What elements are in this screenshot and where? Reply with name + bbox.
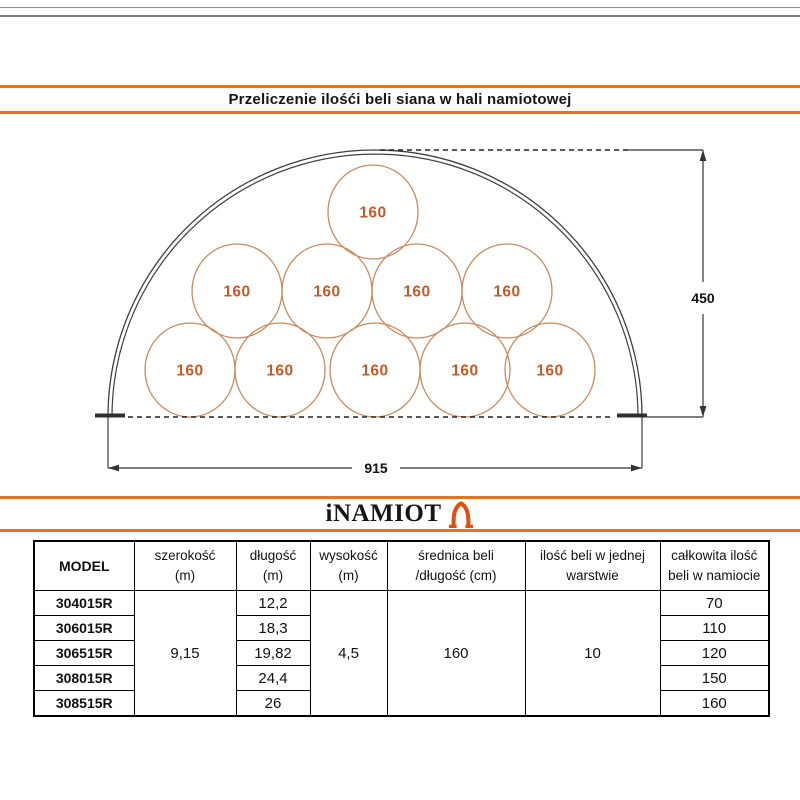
- table-row: 304015R9,1512,24,51601070: [34, 591, 769, 616]
- bale-label: 160: [493, 284, 520, 301]
- spec-table: MODELszerokość(m)długość(m)wysokość(m)śr…: [33, 540, 770, 717]
- bale-label: 160: [313, 284, 340, 301]
- tent-arch-icon: [447, 500, 475, 529]
- bale-label: 160: [361, 363, 388, 380]
- model-cell: 308015R: [34, 666, 134, 691]
- szerokosc-cell: 9,15: [134, 591, 236, 717]
- table-header-cell: wysokość(m): [310, 541, 387, 591]
- width-dimension-label: 915: [364, 460, 388, 476]
- bale-label: 160: [223, 284, 250, 301]
- title-bar: Przeliczenie ilośći beli siana w hali na…: [0, 85, 800, 114]
- right-foot: [617, 414, 647, 418]
- calkowita-cell: 120: [660, 641, 769, 666]
- model-cell: 306515R: [34, 641, 134, 666]
- model-cell: 306015R: [34, 616, 134, 641]
- model-cell: 304015R: [34, 591, 134, 616]
- dlugosc-cell: 26: [236, 691, 310, 717]
- srednica-cell: 160: [387, 591, 525, 717]
- bale-label: 160: [359, 205, 386, 222]
- bale-label: 160: [451, 363, 478, 380]
- calkowita-cell: 150: [660, 666, 769, 691]
- table-header-cell: szerokość(m): [134, 541, 236, 591]
- page: Przeliczenie ilośći beli siana w hali na…: [0, 0, 800, 800]
- table-header-cell: długość(m): [236, 541, 310, 591]
- table-header-cell: całkowita ilośćbeli w namiocie: [660, 541, 769, 591]
- calkowita-cell: 70: [660, 591, 769, 616]
- left-foot: [95, 414, 125, 418]
- bale-label: 160: [536, 363, 563, 380]
- table-header-cell: średnica beli/długość (cm): [387, 541, 525, 591]
- top-rule: [0, 7, 800, 8]
- ilosc-w-warstwie-cell: 10: [525, 591, 660, 717]
- height-dimension-line: [700, 150, 707, 417]
- bale-label: 160: [403, 284, 430, 301]
- dlugosc-cell: 19,82: [236, 641, 310, 666]
- tent-diagram: 160160160160160160160160160160 450: [0, 130, 800, 490]
- calkowita-cell: 160: [660, 691, 769, 717]
- table-header-cell: MODEL: [34, 541, 134, 591]
- wysokosc-cell: 4,5: [310, 591, 387, 717]
- dlugosc-cell: 18,3: [236, 616, 310, 641]
- dlugosc-cell: 12,2: [236, 591, 310, 616]
- model-cell: 308515R: [34, 691, 134, 717]
- dlugosc-cell: 24,4: [236, 666, 310, 691]
- brand-name: iNAMIOT: [326, 501, 442, 528]
- height-dimension-label: 450: [691, 290, 715, 306]
- page-title: Przeliczenie ilośći beli siana w hali na…: [228, 91, 571, 108]
- table-header-cell: ilość beli w jednejwarstwie: [525, 541, 660, 591]
- calkowita-cell: 110: [660, 616, 769, 641]
- brand-logo-bar: iNAMIOT: [0, 496, 800, 532]
- bale-label: 160: [266, 363, 293, 380]
- bale-label: 160: [176, 363, 203, 380]
- top-rule: [0, 15, 800, 17]
